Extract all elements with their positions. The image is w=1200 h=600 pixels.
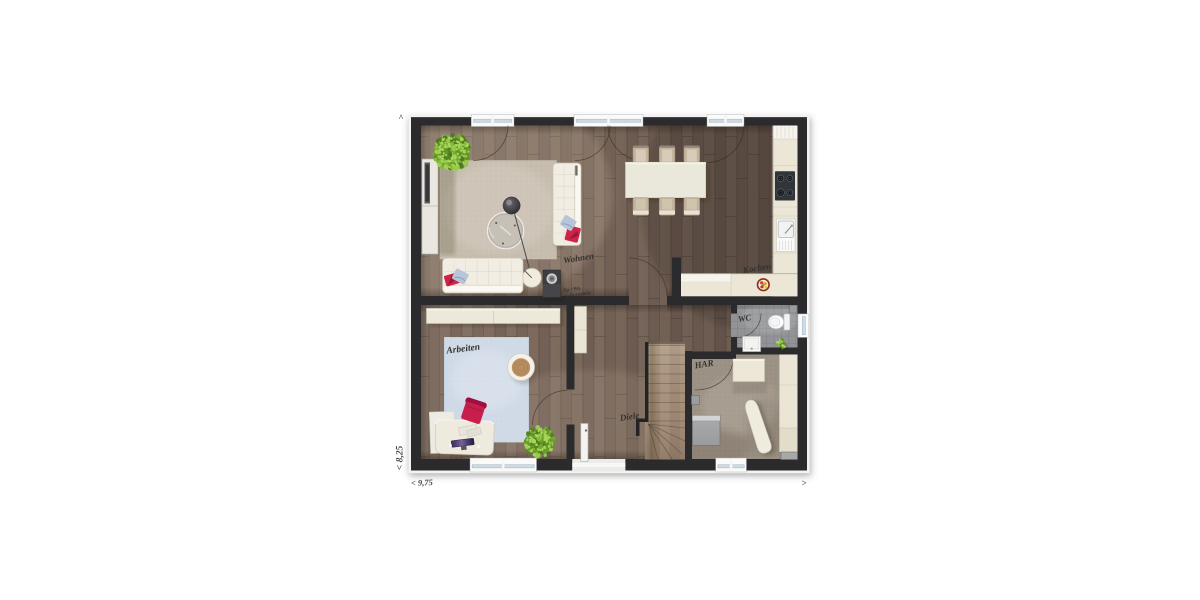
svg-text:^: ^ xyxy=(398,113,403,123)
svg-text:< 9,75: < 9,75 xyxy=(411,477,434,488)
svg-text:WC: WC xyxy=(737,312,752,324)
svg-text:>: > xyxy=(801,478,806,488)
svg-text:< 8,25: < 8,25 xyxy=(396,446,406,471)
